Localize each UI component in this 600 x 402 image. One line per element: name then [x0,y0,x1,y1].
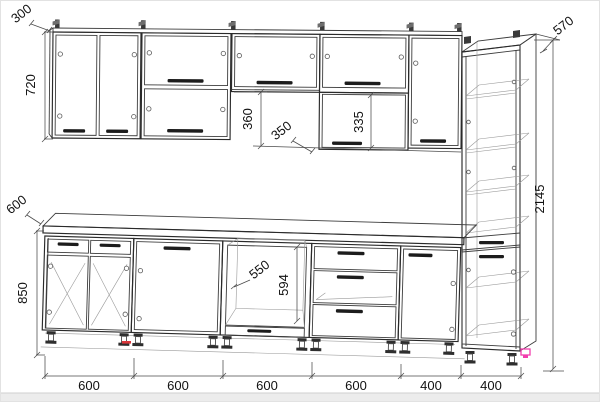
dim-width-1-label: 600 [78,378,100,393]
dim-tall-height-label: 2145 [532,185,547,214]
dim-mid-box-door-label: 335 [351,111,366,133]
drawer-handle [58,242,79,246]
door-handle [106,129,128,133]
flap-handle [332,141,362,145]
door-handle [420,139,446,143]
tall-drawer-handle [479,241,504,244]
flap-handle [345,82,381,86]
flap-handle [168,79,204,83]
mount-bracket [513,30,520,38]
dim-upper-height-label: 720 [23,74,38,96]
dim-width-5-label: 400 [420,378,442,393]
drawer-handle [100,244,121,248]
dim-width-3-label: 600 [256,378,278,393]
dim-width-2-label: 600 [167,378,189,393]
flap-handle [257,81,293,85]
dim-oven-height-label: 594 [276,274,291,296]
window-bottom-band [0,393,600,402]
red-marker [122,341,131,344]
tall-door-handle [479,255,504,258]
drawing-canvas: 300 720 600 850 [0,0,600,402]
door-handle [63,129,85,133]
dim-upper-flap-opening-label: 360 [240,108,255,130]
flap-handle [167,129,203,133]
dim-width-4-label: 600 [345,378,367,393]
door-handle [408,253,432,257]
dim-base-height-label: 850 [15,282,30,304]
kitchen-elevation-drawing: 300 720 600 850 [0,0,600,402]
dim-width-6-label: 400 [480,378,502,393]
mount-bracket [464,36,471,44]
page-background [0,0,600,402]
